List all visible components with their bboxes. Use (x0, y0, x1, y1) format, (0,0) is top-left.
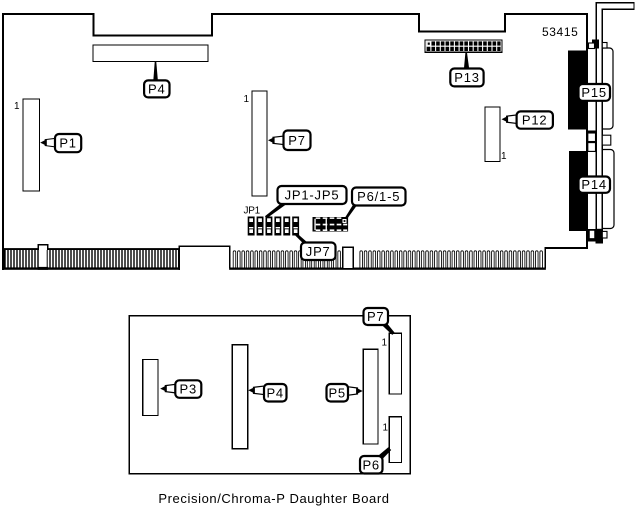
svg-text:P3: P3 (180, 382, 198, 397)
svg-text:P13: P13 (454, 70, 480, 85)
svg-text:1: 1 (382, 338, 388, 349)
svg-text:JP1-JP5: JP1-JP5 (285, 188, 340, 203)
svg-text:P4: P4 (148, 82, 166, 97)
svg-text:P1: P1 (59, 136, 77, 151)
svg-text:1: 1 (244, 94, 250, 105)
svg-text:P4: P4 (266, 385, 284, 400)
svg-text:1: 1 (14, 101, 20, 112)
svg-text:JP7: JP7 (306, 244, 331, 259)
svg-text:53415: 53415 (542, 25, 578, 39)
svg-text:Precision/Chroma-P Daughter Bo: Precision/Chroma-P Daughter Board (158, 491, 389, 506)
svg-text:P7: P7 (367, 309, 385, 324)
svg-text:P15: P15 (581, 85, 607, 100)
svg-text:P14: P14 (581, 177, 607, 192)
svg-text:P6/1-5: P6/1-5 (357, 189, 400, 204)
svg-text:P5: P5 (328, 385, 346, 400)
svg-text:1: 1 (501, 151, 507, 162)
svg-text:P7: P7 (288, 133, 306, 148)
svg-text:JP1: JP1 (244, 206, 261, 217)
svg-text:1: 1 (383, 423, 389, 434)
svg-text:P6: P6 (362, 457, 380, 472)
svg-text:P12: P12 (522, 113, 548, 128)
